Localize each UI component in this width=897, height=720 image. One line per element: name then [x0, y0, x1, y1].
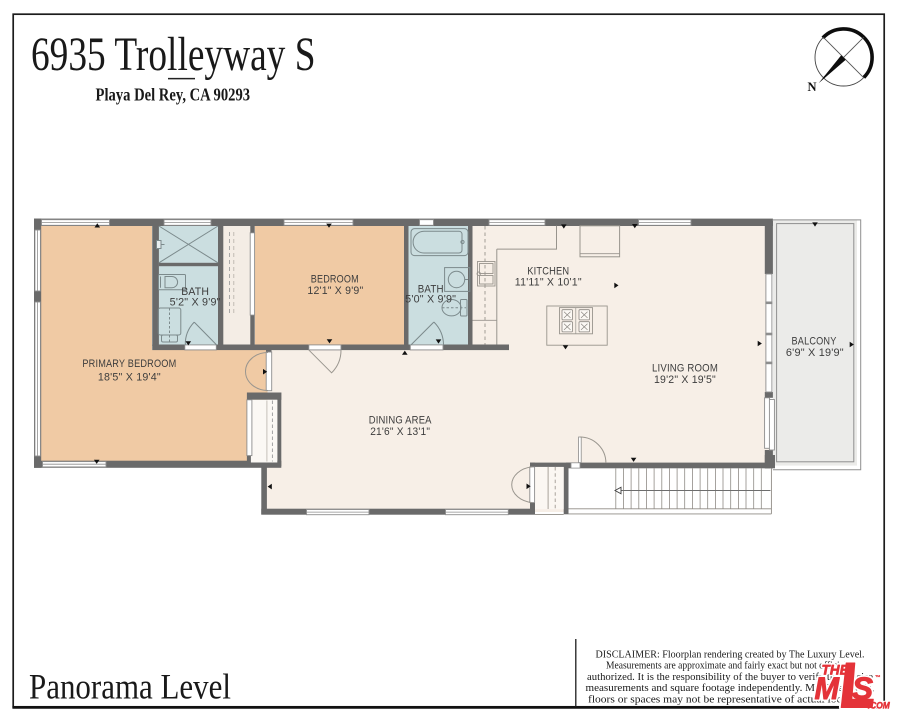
svg-text:6'9" X 19'9": 6'9" X 19'9"	[786, 347, 844, 359]
svg-text:5'2" X 9'9": 5'2" X 9'9"	[170, 297, 221, 309]
svg-text:N: N	[807, 80, 816, 94]
svg-text:11'11" X 10'1": 11'11" X 10'1"	[515, 276, 582, 288]
svg-text:DINING AREA: DINING AREA	[369, 415, 433, 427]
svg-text:21'6" X 13'1": 21'6" X 13'1"	[370, 426, 430, 438]
svg-text:LIVING ROOM: LIVING ROOM	[652, 362, 718, 374]
svg-text:Panorama Level: Panorama Level	[29, 666, 231, 706]
svg-text:BALCONY: BALCONY	[792, 336, 837, 348]
svg-text:™: ™	[875, 675, 881, 681]
svg-text:6935 Trolleyway S: 6935 Trolleyway S	[31, 29, 316, 81]
svg-text:19'2" X 19'5": 19'2" X 19'5"	[654, 374, 716, 386]
svg-text:18'5" X 19'4": 18'5" X 19'4"	[98, 371, 161, 383]
svg-text:DISCLAIMER: Floorplan renderin: DISCLAIMER: Floorplan rendering created …	[596, 649, 865, 660]
svg-text:12'1" X 9'9": 12'1" X 9'9"	[307, 285, 363, 297]
svg-text:PRIMARY BEDROOM: PRIMARY BEDROOM	[82, 358, 176, 370]
svg-text:.COM: .COM	[868, 699, 890, 710]
svg-text:Playa Del Rey, CA 90293: Playa Del Rey, CA 90293	[96, 85, 251, 105]
svg-text:M: M	[815, 670, 840, 706]
svg-text:5'0" X 9'9": 5'0" X 9'9"	[405, 293, 456, 305]
